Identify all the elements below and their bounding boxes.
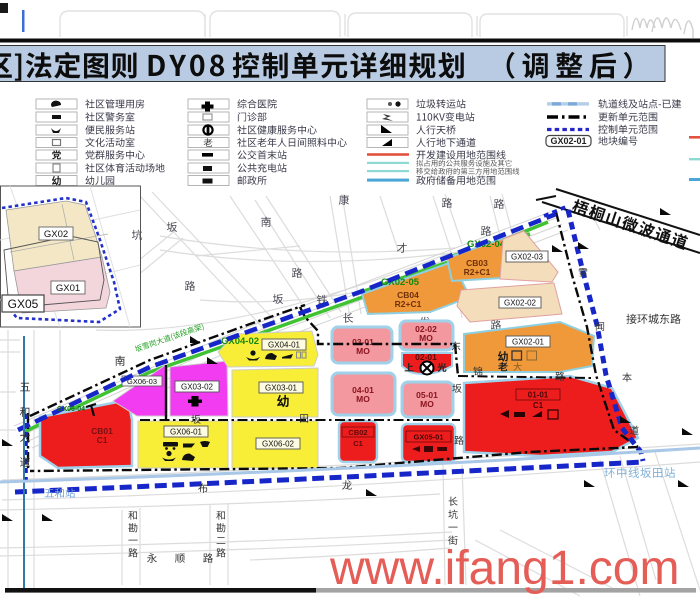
svg-text:www.ifang1.com: www.ifang1.com: [329, 542, 679, 595]
svg-text:GX02-02: GX02-02: [504, 299, 537, 308]
svg-text:MO: MO: [356, 346, 370, 356]
svg-text:MO: MO: [420, 399, 434, 409]
svg-text:C1: C1: [533, 401, 544, 410]
svg-text:R2+C1: R2+C1: [395, 299, 422, 309]
svg-text:MO: MO: [419, 333, 433, 343]
svg-text:GX02-01: GX02-01: [512, 338, 545, 347]
svg-text:CB02: CB02: [348, 428, 367, 437]
svg-text:GX02-05: GX02-05: [381, 277, 420, 288]
svg-text:GX04-01: GX04-01: [268, 341, 301, 350]
svg-text:MO: MO: [356, 394, 370, 404]
svg-text:02-01: 02-01: [415, 352, 437, 362]
svg-text:GX02-03: GX02-03: [511, 253, 544, 262]
svg-text:GX01: GX01: [56, 283, 80, 294]
svg-text:R2+C1: R2+C1: [464, 267, 491, 277]
svg-text:GX02-01: GX02-01: [550, 136, 586, 146]
svg-text:C1: C1: [353, 439, 363, 448]
svg-text:GX06-01: GX06-01: [170, 428, 203, 437]
svg-text:GX05: GX05: [8, 297, 39, 311]
svg-text:GX06-04: GX06-04: [57, 406, 85, 413]
svg-text:GX02: GX02: [44, 229, 68, 240]
svg-text:GX05-01: GX05-01: [413, 433, 443, 442]
svg-text:GX06-02: GX06-02: [262, 440, 295, 449]
svg-text:GX03-02: GX03-02: [181, 383, 214, 392]
svg-text:01-01: 01-01: [528, 391, 549, 400]
svg-text:C1: C1: [97, 435, 108, 445]
svg-text:GX03-01: GX03-01: [265, 384, 298, 393]
